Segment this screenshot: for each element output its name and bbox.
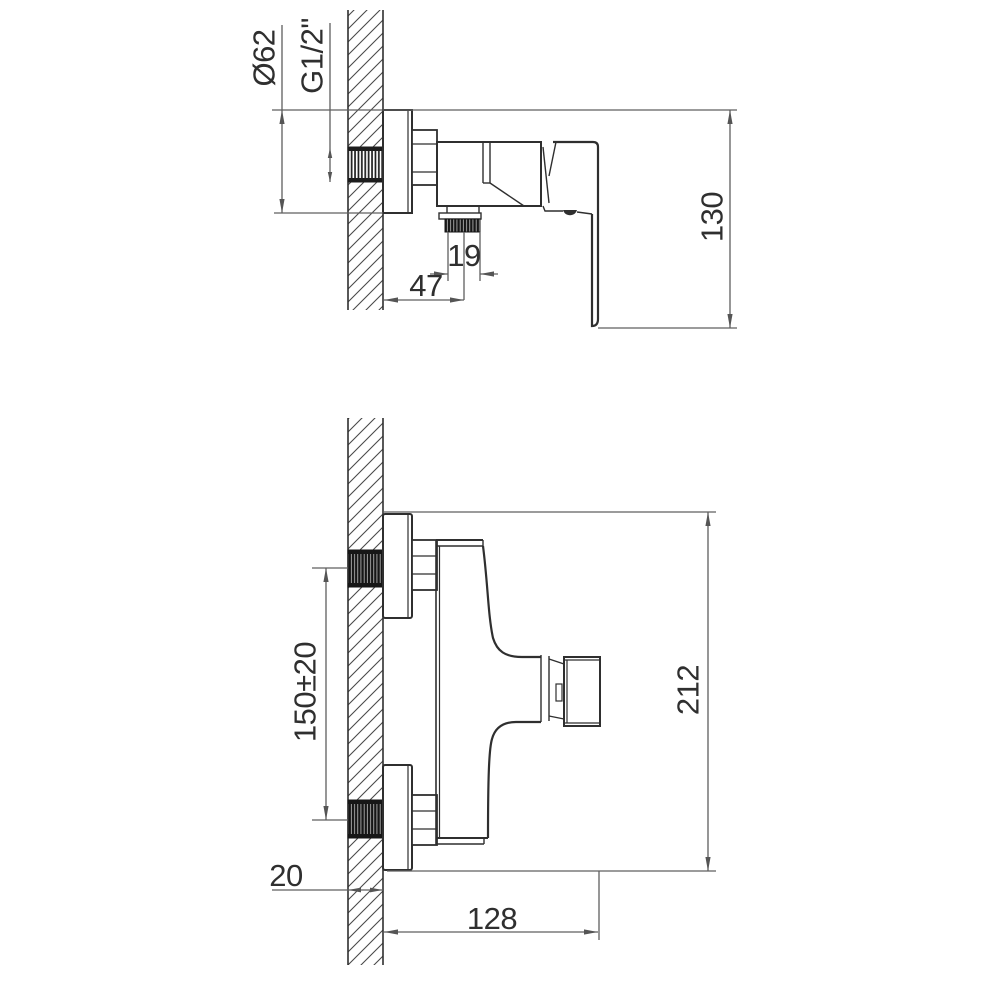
cartridge-front-view [541,655,564,722]
dimensions-front-view [272,512,716,940]
valve-body-top-view [437,142,541,206]
front-view: 150±20 20 128 212 [269,418,716,965]
escutcheon-plate-upper [383,514,412,618]
escutcheon-plate-lower [383,765,412,870]
dim-label-inlet-thread: G1/2" [295,18,330,94]
dim-label-overall-height: 212 [671,665,706,715]
dim-label-wall-to-outlet: 47 [409,268,442,303]
hex-nut-top-view [412,130,437,185]
wall-section-front-view [348,418,383,965]
inlet-thread-upper [348,550,383,587]
dim-label-overall-depth: 128 [467,901,517,936]
escutcheon-plate-top-view [383,110,412,213]
inlet-thread-top-view [348,147,382,182]
handle-lever-top-view [543,142,598,326]
dim-label-wall-thickness: 20 [269,858,303,893]
hex-nut-upper [412,540,437,590]
top-view: Ø62 G1/2" 47 19 130 [247,10,738,328]
wall-hatch [348,418,383,965]
dim-label-outlet-width: 19 [447,238,480,273]
dim-label-escutcheon-diameter: Ø62 [247,29,282,86]
hex-nut-lower [412,795,437,845]
drawing-svg: Ø62 G1/2" 47 19 130 [0,0,1000,1000]
handle-front-view [564,657,600,726]
dim-label-overall-length: 130 [695,192,730,242]
technical-drawing-canvas: Ø62 G1/2" 47 19 130 [0,0,1000,1000]
inlet-thread-lower [348,800,383,838]
cartridge-bonnet-top-view [543,142,556,203]
dim-label-connection-centers: 150±20 [288,642,323,742]
valve-body-front-view [436,540,541,845]
handle-clip-detail [563,210,577,215]
outlet-thread-top-view [439,206,481,232]
